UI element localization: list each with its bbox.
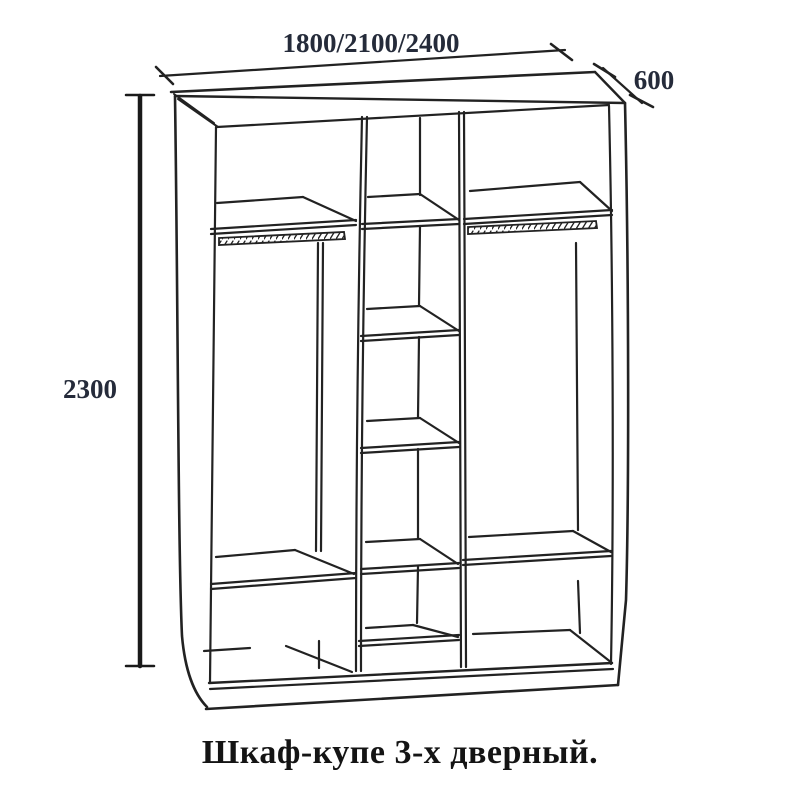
right-top-shelf-diagonal [580, 182, 612, 211]
right-top-shelf-front [464, 210, 612, 219]
middle-shelf-2-diagonal [420, 306, 459, 331]
depth-dimension-label: 600 [634, 65, 675, 95]
middle-shelf-4-diagonal [420, 539, 458, 564]
middle-back-edge-2 [419, 226, 420, 305]
ceiling-line [217, 105, 609, 127]
hanging-rod-left [219, 232, 345, 245]
left-wall-inner-edge [210, 127, 216, 682]
right-lower-shelf-back [469, 531, 573, 537]
right-wall-outer-edge [618, 103, 628, 685]
dimension-height [126, 95, 154, 666]
left-section-back-edge-b [321, 243, 323, 551]
wardrobe-carcass [171, 72, 628, 709]
middle-shelf-5-diagonal [413, 625, 458, 637]
width-dimension-tick-right [551, 44, 572, 60]
partition-left-front-edge-b [361, 117, 367, 671]
partition-right-front-edge [459, 112, 461, 667]
right-section-back-edge-low [578, 581, 580, 633]
right-wall-inner-edge [609, 106, 613, 664]
middle-shelf-3-diagonal [420, 418, 459, 443]
left-top-shelf-diagonal [303, 197, 356, 221]
depth-dimension-tick-bottom [630, 95, 653, 107]
middle-back-edge-3 [418, 337, 419, 417]
right-compartment [463, 182, 612, 663]
left-wall-outer-edge [175, 96, 207, 707]
right-lower-shelf-diagonal [573, 531, 611, 552]
top-slab-front-edge [175, 96, 625, 103]
middle-shelf-1-front-b [362, 224, 459, 229]
top-slab-right-edge [595, 72, 625, 103]
drawing-caption: Шкаф-купе 3-х дверный. [0, 734, 800, 772]
plinth-bottom-edge [206, 685, 618, 709]
middle-shelf-1-diagonal [420, 194, 459, 220]
wardrobe-technical-drawing: 1800/2100/2400 600 2300 [0, 0, 800, 800]
top-slab-left-corner-edge [174, 94, 214, 123]
width-dimension-label: 1800/2100/2400 [282, 28, 459, 58]
partition-right-front-edge-b [464, 112, 466, 667]
height-dimension-label: 2300 [63, 374, 117, 404]
middle-shelf-1-front [362, 219, 459, 224]
middle-shelf-4-back [366, 539, 420, 542]
right-lower-shelf-front-b [463, 556, 611, 565]
top-slab-back-edge [171, 72, 595, 92]
middle-shelf-1-back [368, 194, 420, 197]
right-bottom-surface-back [473, 630, 570, 634]
right-section-back-edge [576, 243, 578, 530]
middle-shelf-3-back [367, 418, 420, 421]
middle-shelves [359, 194, 459, 646]
middle-back-edge-5 [417, 567, 418, 623]
left-lower-shelf-front [211, 573, 356, 584]
left-top-shelf-back [217, 197, 303, 203]
right-top-shelf-back [470, 182, 580, 191]
left-lower-shelf-front-b [211, 578, 356, 589]
left-top-shelf-front [211, 220, 356, 229]
right-lower-shelf-front [463, 551, 611, 560]
left-lower-shelf-diagonal [295, 550, 354, 574]
top-slab-left-corner-edge-inner [178, 99, 218, 127]
left-lower-shelf-back [216, 550, 295, 557]
left-section-back-edge [316, 243, 318, 551]
right-bottom-surface-diagonal [570, 630, 612, 663]
partitions [316, 112, 580, 671]
middle-shelf-2-back [367, 306, 420, 309]
middle-shelf-5-back [366, 625, 413, 628]
technical-drawing-page: 1800/2100/2400 600 2300 [0, 0, 800, 800]
left-compartment [204, 197, 356, 672]
